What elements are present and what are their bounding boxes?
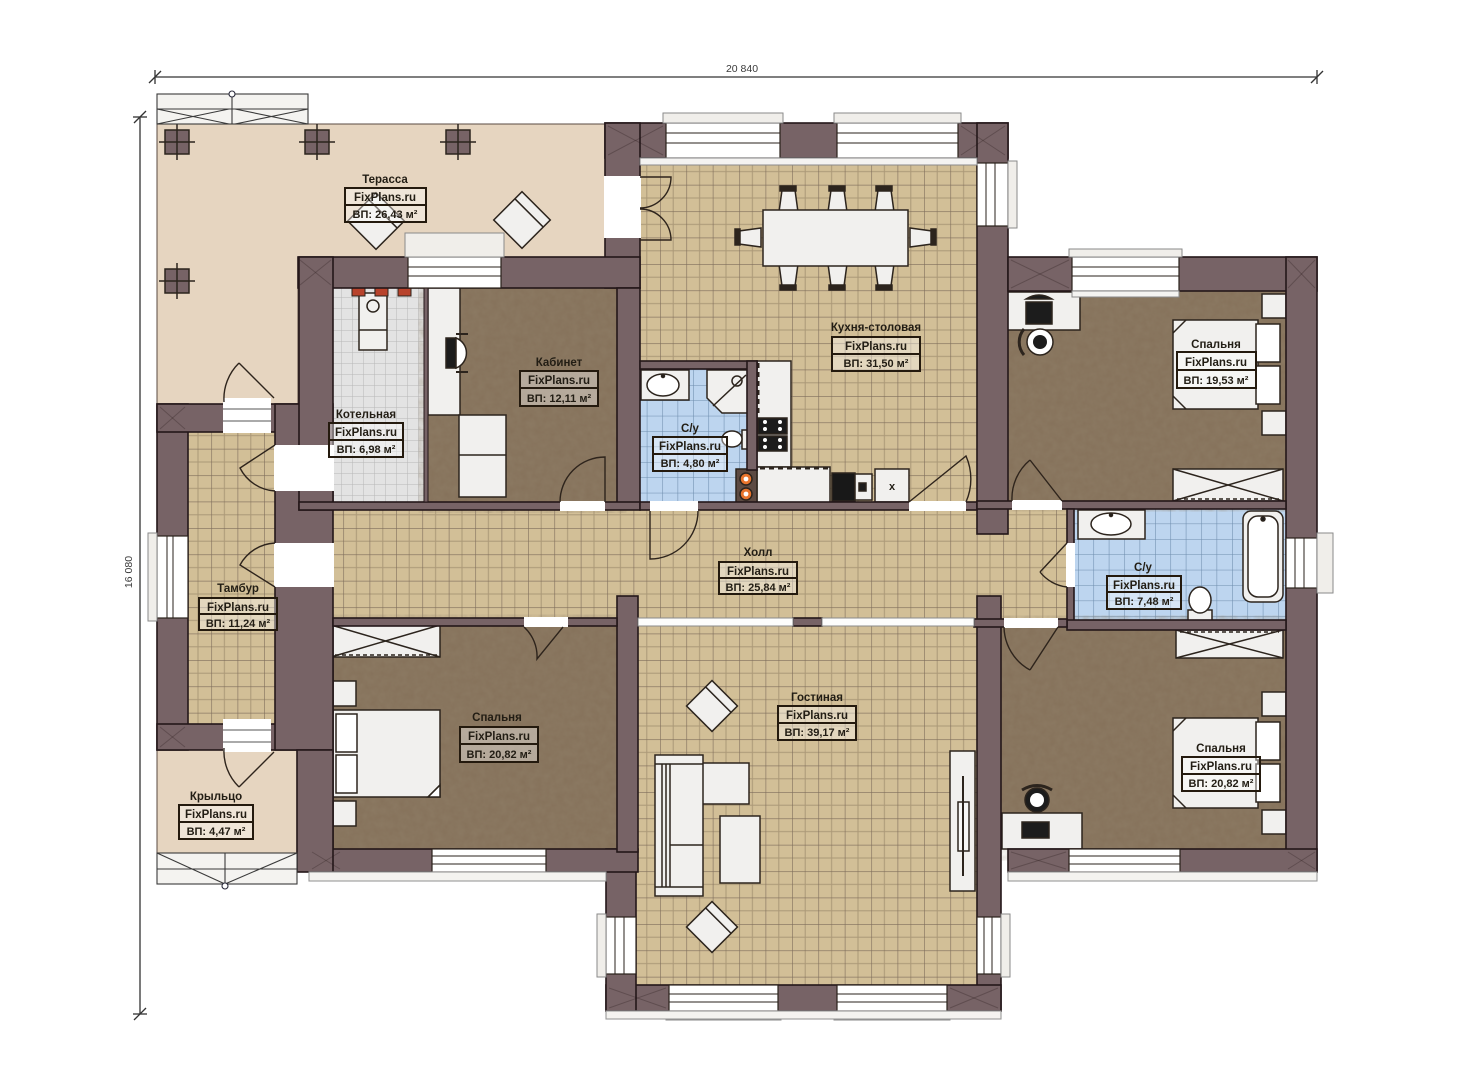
svg-text:FixPlans.ru: FixPlans.ru [1190, 761, 1252, 773]
svg-text:Тамбур: Тамбур [217, 583, 259, 595]
svg-text:ВП: 19,53 м²: ВП: 19,53 м² [1184, 375, 1249, 387]
svg-text:Кабинет: Кабинет [536, 357, 583, 369]
svg-text:FixPlans.ru: FixPlans.ru [845, 341, 907, 353]
svg-text:FixPlans.ru: FixPlans.ru [528, 375, 590, 387]
svg-text:Спальня: Спальня [1191, 339, 1241, 351]
svg-text:FixPlans.ru: FixPlans.ru [207, 602, 269, 614]
svg-text:FixPlans.ru: FixPlans.ru [468, 731, 530, 743]
svg-text:FixPlans.ru: FixPlans.ru [659, 441, 721, 453]
svg-text:С/у: С/у [1134, 562, 1153, 574]
svg-text:FixPlans.ru: FixPlans.ru [1185, 357, 1247, 369]
svg-text:FixPlans.ru: FixPlans.ru [185, 809, 247, 821]
svg-text:Котельная: Котельная [336, 409, 396, 421]
svg-text:ВП: 4,47 м²: ВП: 4,47 м² [187, 826, 246, 838]
svg-text:Спальня: Спальня [472, 712, 522, 724]
svg-text:ВП: 31,50 м²: ВП: 31,50 м² [844, 358, 909, 370]
svg-text:Крыльцо: Крыльцо [190, 791, 242, 803]
svg-text:ВП: 4,80 м²: ВП: 4,80 м² [661, 458, 720, 470]
svg-text:FixPlans.ru: FixPlans.ru [786, 710, 848, 722]
svg-text:FixPlans.ru: FixPlans.ru [1113, 580, 1175, 592]
svg-text:x: x [889, 481, 896, 493]
svg-text:FixPlans.ru: FixPlans.ru [727, 566, 789, 578]
svg-text:Терасса: Терасса [362, 174, 408, 186]
svg-text:Холл: Холл [744, 547, 773, 559]
svg-text:ВП: 7,48 м²: ВП: 7,48 м² [1115, 596, 1174, 608]
svg-text:20 840: 20 840 [726, 63, 758, 75]
svg-text:ВП: 20,82 м²: ВП: 20,82 м² [467, 749, 532, 761]
svg-text:ВП: 6,98 м²: ВП: 6,98 м² [337, 444, 396, 456]
svg-text:Кухня-столовая: Кухня-столовая [831, 322, 921, 334]
svg-text:ВП: 25,84 м²: ВП: 25,84 м² [726, 582, 791, 594]
svg-text:Спальня: Спальня [1196, 743, 1246, 755]
svg-text:С/у: С/у [681, 423, 700, 435]
svg-text:ВП: 20,82 м²: ВП: 20,82 м² [1189, 778, 1254, 790]
svg-text:Гостиная: Гостиная [791, 692, 843, 704]
svg-text:16 080: 16 080 [123, 556, 135, 588]
svg-text:ВП: 26,43 м²: ВП: 26,43 м² [353, 209, 418, 221]
svg-text:ВП: 12,11 м²: ВП: 12,11 м² [527, 393, 592, 405]
svg-text:FixPlans.ru: FixPlans.ru [354, 192, 416, 204]
svg-text:ВП: 11,24 м²: ВП: 11,24 м² [206, 618, 271, 630]
svg-text:FixPlans.ru: FixPlans.ru [335, 427, 397, 439]
svg-text:ВП: 39,17 м²: ВП: 39,17 м² [785, 727, 850, 739]
